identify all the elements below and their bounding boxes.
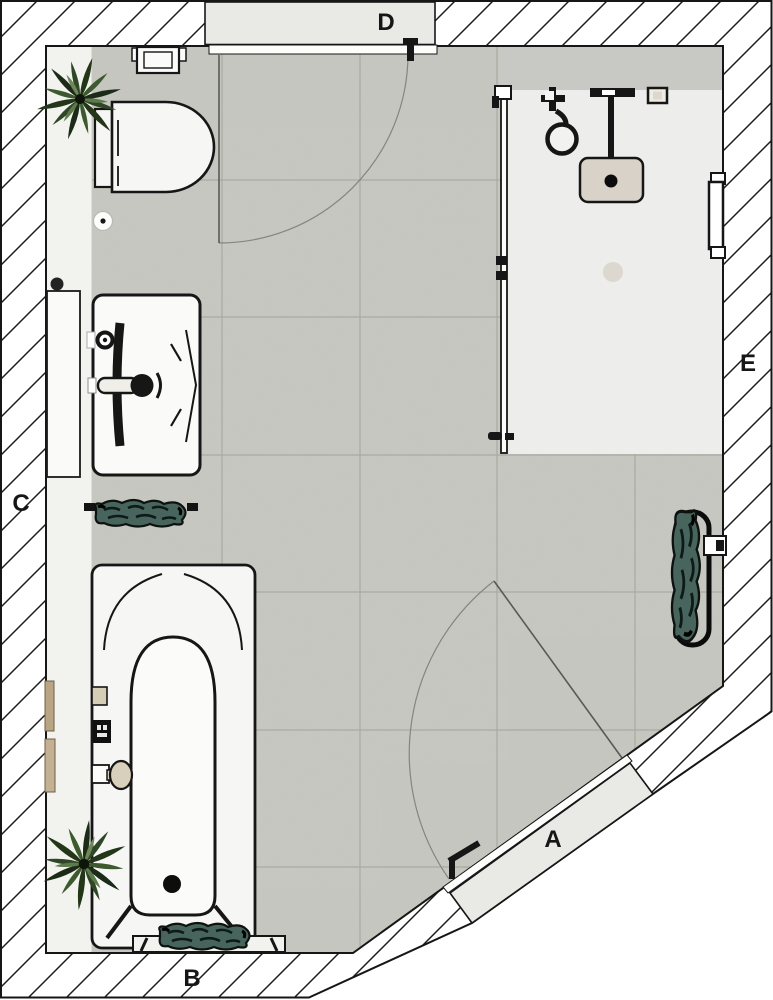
wall-label-d: D [377,9,394,36]
wall-shelf-icon [45,739,55,792]
towel-rail-icon [84,500,198,527]
washbasin-icon [87,295,200,475]
towel-icon [159,923,249,950]
mirror-icon [47,291,80,477]
bathroom-floor-plan: A B C D E [0,0,773,1000]
wall-label-e: E [740,350,756,377]
wall-hook-icon [51,278,64,291]
shower-ledge [499,47,722,90]
door-hinge-icon [403,38,418,45]
soap-dish-icon [92,687,107,705]
wall-label-b: B [183,965,200,992]
wall-label-c: C [12,490,29,517]
shower-niche-icon [709,173,725,258]
tub-drain-icon [163,875,181,893]
towel-icon [672,511,700,642]
left-ledge [47,47,92,952]
door-threshold [209,45,437,54]
wall-label-a: A [544,826,561,853]
toilet-roll-holder-icon [94,212,113,231]
bathtub-icon [92,565,255,948]
floor-plan-canvas: A B C D E [0,0,773,1000]
bath-control-icon [93,720,111,743]
floor-drain-icon [603,262,623,282]
shower-control-icon [648,88,667,103]
basin-overflow-icon [87,332,113,348]
wall-shelf-icon [45,681,54,731]
door-panel [205,2,435,45]
walk-in-shower [488,47,725,454]
cistern-flush-plate-icon [132,47,186,73]
towel-icon [95,500,185,527]
